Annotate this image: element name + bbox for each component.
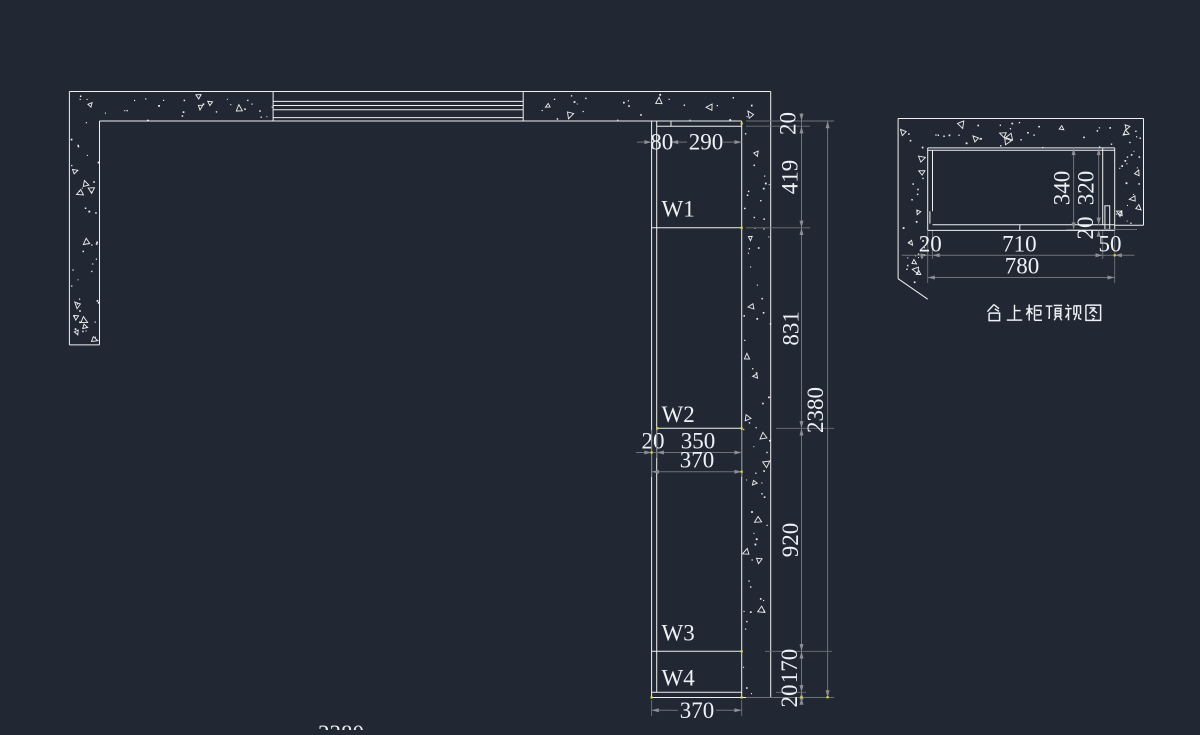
- svg-text:20: 20: [777, 685, 802, 708]
- svg-text:80: 80: [650, 130, 673, 155]
- svg-text:780: 780: [1005, 254, 1040, 279]
- svg-text:20: 20: [642, 429, 665, 454]
- svg-text:50: 50: [1099, 232, 1122, 257]
- svg-text:W1: W1: [662, 197, 695, 222]
- svg-text:2380: 2380: [318, 721, 364, 730]
- svg-text:20: 20: [776, 112, 801, 135]
- svg-text:370: 370: [680, 698, 715, 723]
- svg-text:170: 170: [777, 649, 802, 684]
- svg-text:340: 340: [1050, 171, 1075, 206]
- svg-text:W2: W2: [662, 402, 695, 427]
- svg-text:20: 20: [1073, 217, 1098, 240]
- svg-text:920: 920: [778, 523, 803, 558]
- svg-text:290: 290: [689, 130, 724, 155]
- svg-text:370: 370: [680, 448, 715, 473]
- svg-text:419: 419: [778, 160, 803, 195]
- svg-text:20: 20: [919, 232, 942, 257]
- svg-text:320: 320: [1074, 171, 1099, 206]
- svg-text:W4: W4: [662, 666, 696, 691]
- svg-text:W3: W3: [662, 621, 695, 646]
- svg-text:2380: 2380: [803, 387, 828, 433]
- svg-text:831: 831: [779, 311, 804, 346]
